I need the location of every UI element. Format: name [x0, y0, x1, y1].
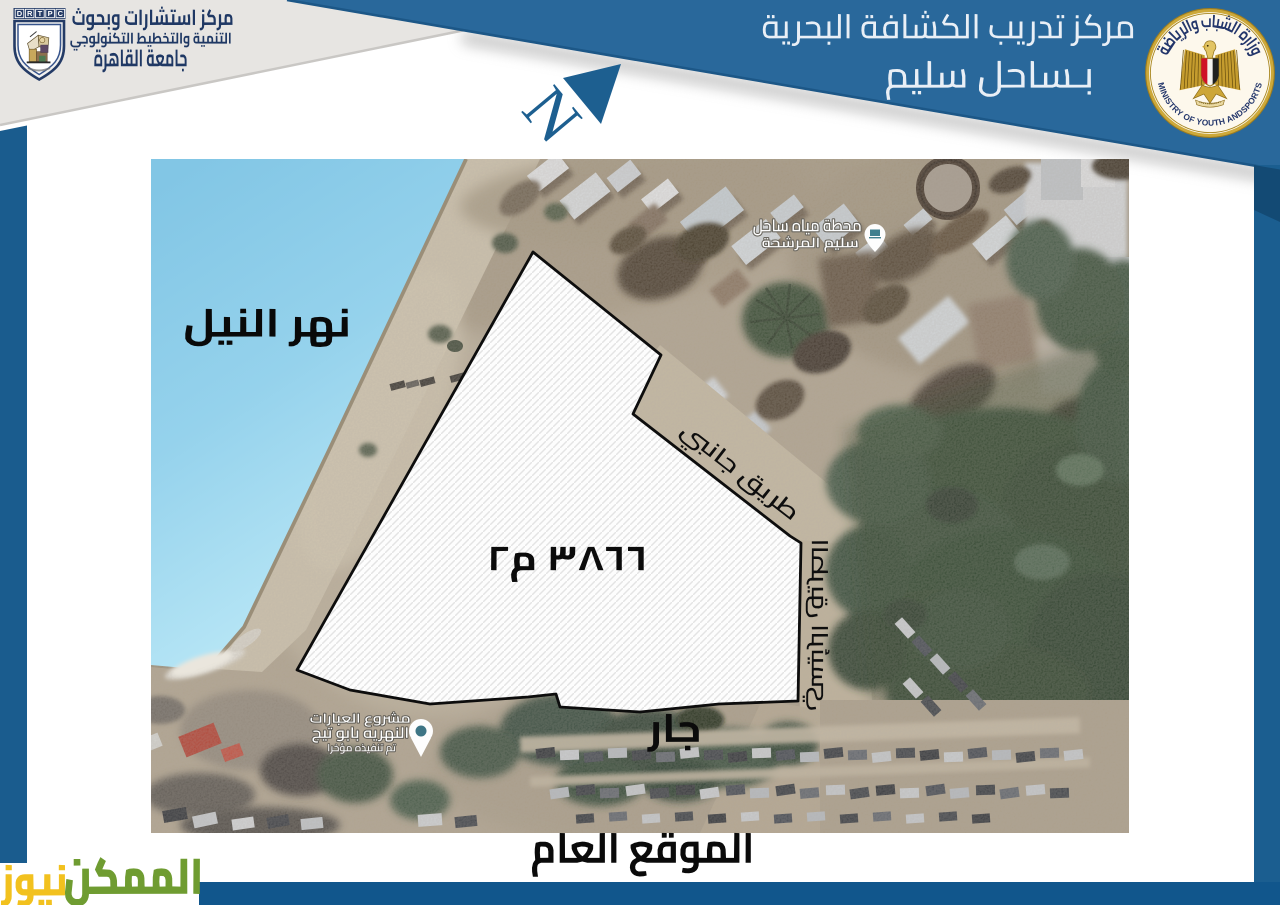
svg-text:T: T	[38, 9, 43, 18]
svg-text:D: D	[17, 9, 23, 18]
svg-text:R: R	[27, 9, 33, 18]
svg-text:P: P	[48, 9, 53, 18]
svg-text:C: C	[58, 9, 64, 18]
